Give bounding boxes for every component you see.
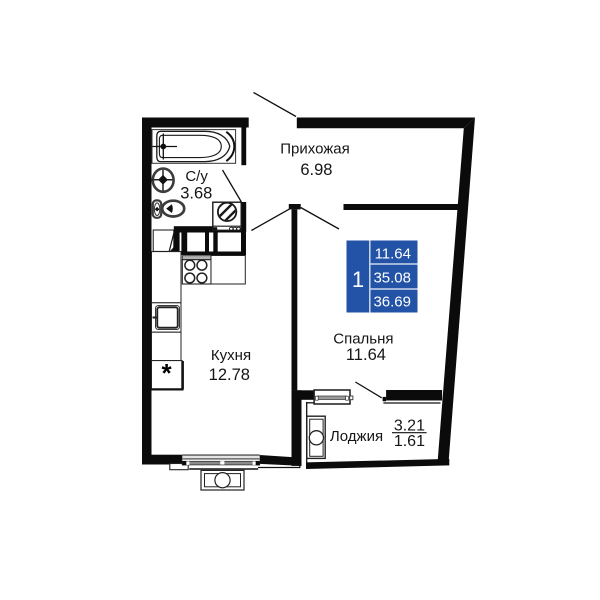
svg-text:Лоджия: Лоджия xyxy=(330,428,383,445)
svg-text:1.61: 1.61 xyxy=(394,433,425,450)
svg-text:11.64: 11.64 xyxy=(375,245,411,262)
svg-text:С/у: С/у xyxy=(185,168,208,185)
svg-text:*: * xyxy=(161,358,172,388)
svg-text:36.69: 36.69 xyxy=(373,293,411,310)
svg-text:6.98: 6.98 xyxy=(300,161,332,179)
svg-text:35.08: 35.08 xyxy=(373,269,411,286)
svg-text:1: 1 xyxy=(352,267,364,292)
svg-text:Кухня: Кухня xyxy=(211,347,251,364)
svg-text:Спальня: Спальня xyxy=(333,331,393,348)
svg-text:12.78: 12.78 xyxy=(209,366,250,384)
svg-text:3.68: 3.68 xyxy=(180,185,212,203)
svg-text:Прихожая: Прихожая xyxy=(280,141,350,158)
svg-text:11.64: 11.64 xyxy=(346,346,386,364)
